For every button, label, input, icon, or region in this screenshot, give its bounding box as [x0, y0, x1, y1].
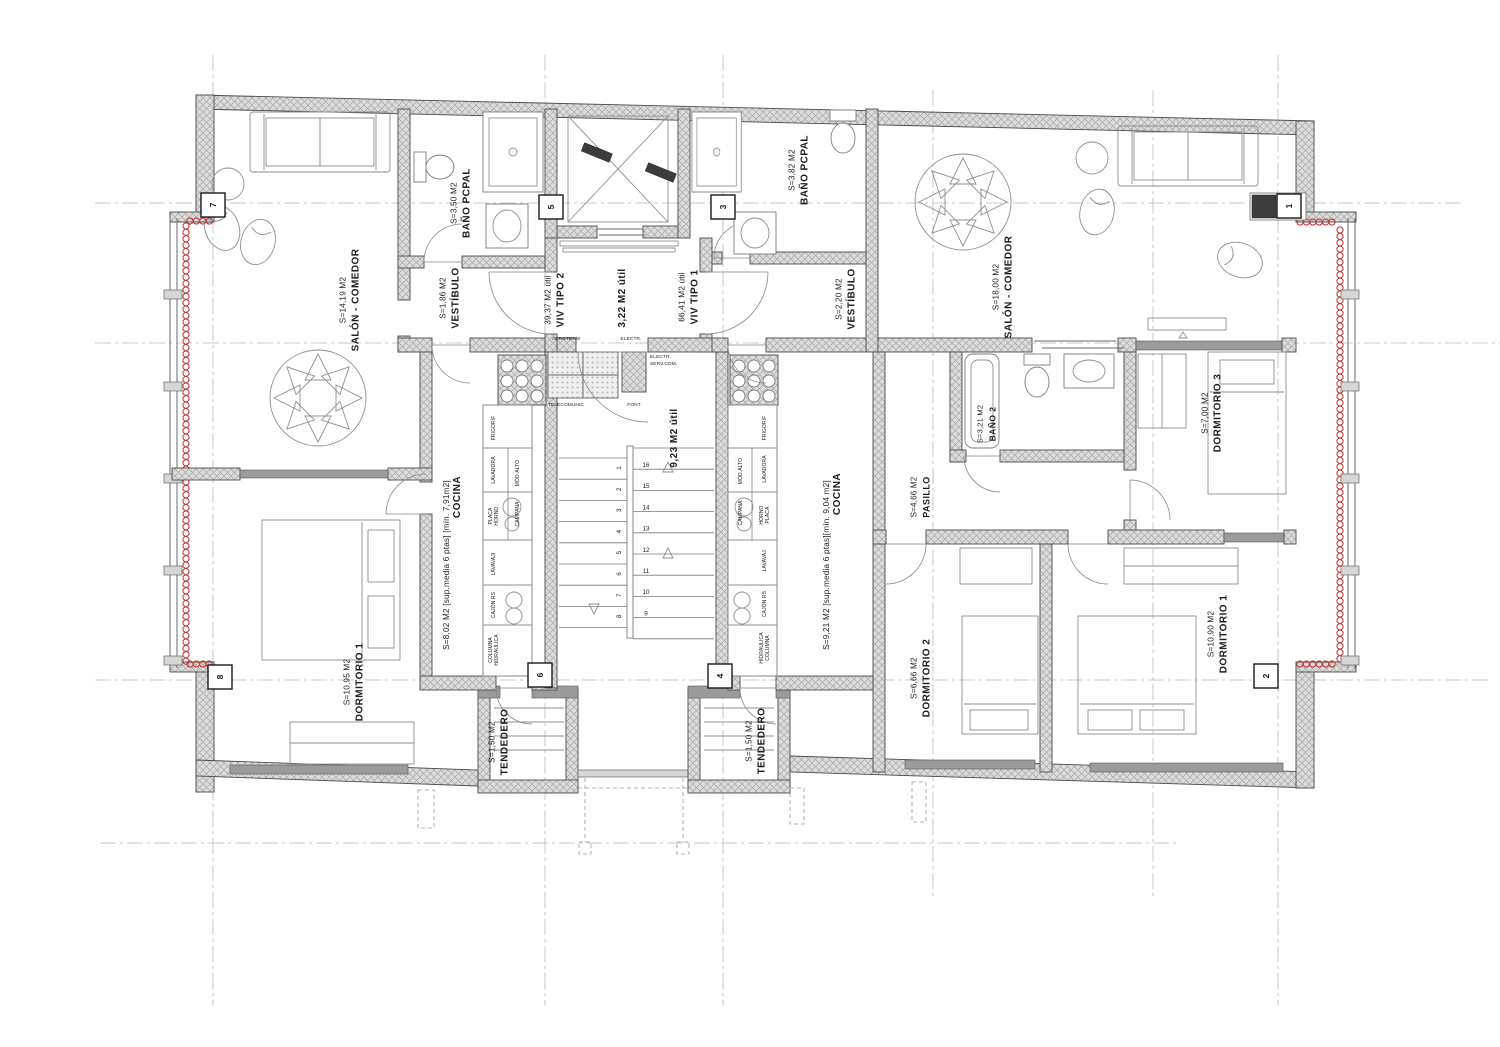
dining-set-right — [915, 154, 1011, 250]
room-label-name: 3,22 M2 útil — [617, 268, 628, 327]
room-label-name: 9,23 M2 útil — [669, 408, 680, 467]
armchair — [1076, 186, 1119, 238]
room-label-name: DORMITORIO 2 — [922, 639, 933, 718]
fixture-label: HORNO — [759, 505, 765, 524]
room-label-name: BAÑO 2 — [988, 407, 998, 442]
room-label-area: S=1,86 M2 — [439, 277, 448, 319]
closet-label: TELECOMUNIC — [548, 402, 584, 408]
room-label-name: SALÓN - COMEDOR — [1002, 235, 1015, 338]
stair-number: 2 — [616, 487, 623, 491]
fixture-label: CAMPANA — [515, 501, 521, 527]
shower — [692, 112, 741, 192]
room-label-area: S=4,66 M2 — [910, 476, 919, 517]
room-label-area: S=18,00 M2 — [992, 264, 1001, 311]
room-label-area: S=8,02 M2 [sup.media 6 ptas] [mín. 7,91m… — [442, 480, 451, 650]
shelf-dorm2 — [960, 548, 1032, 584]
axis-marker-number: 1 — [1284, 203, 1294, 208]
stair-number: 4 — [616, 529, 623, 533]
stair-number: 11 — [643, 568, 650, 575]
room-label-area: S=14,19 M2 — [339, 277, 348, 324]
kitchen-strip-left — [483, 405, 532, 676]
axis-marker-number: 4 — [715, 673, 725, 678]
fixture-label: CAJÓN RS — [490, 591, 497, 618]
fixture-label: MÓD.ALTO — [737, 458, 744, 484]
room-label-name: VIV TIPO 2 — [556, 272, 567, 327]
fixture-label: HIDRAULICA — [494, 634, 500, 666]
room-label-name: BAÑO PCPAL — [798, 135, 811, 205]
room-label-area: S=3,82 M2 — [788, 149, 797, 191]
fixture-label: LAVAVAJ. — [762, 549, 768, 572]
stair-number: 5 — [616, 551, 623, 555]
axis-marker-number: 6 — [535, 672, 545, 677]
toilet — [830, 110, 856, 153]
fixture-label: PLACA — [765, 506, 771, 523]
room-label-name: VESTÍBULO — [845, 268, 858, 329]
fixture-label: LAVADORA — [762, 455, 768, 483]
stair-number: 3 — [616, 508, 623, 512]
room-label-area: S=3,50 M2 — [450, 182, 459, 224]
axis-marker-number: 2 — [1261, 673, 1271, 678]
fixture-label: COLUMNA — [488, 637, 494, 663]
axis-marker-number: 3 — [718, 204, 728, 209]
sofa-left — [250, 112, 390, 172]
fixture-label: LAVADORA — [491, 456, 497, 484]
room-label-name: COCINA — [452, 476, 463, 518]
room-label-area: S=10,95 M2 — [343, 659, 352, 706]
fixture-label: FRIGORÍF — [490, 416, 497, 441]
bed-dorm2-right — [962, 616, 1038, 734]
room-label-name: DORMITORIO 1 — [1219, 595, 1230, 674]
room-label-area: S=9,21 M2 [sup.media 6 ptas][mín. 9,04 m… — [822, 480, 831, 650]
floor-plan-svg: SALÓN - COMEDORS=14,19 M2BAÑO PCPALS=3,5… — [0, 0, 1500, 1047]
bed-dorm1-right — [1078, 616, 1196, 734]
stair-number: 14 — [642, 504, 650, 511]
fixture-label: CAMPANA — [738, 500, 744, 526]
sofa-right — [1118, 126, 1258, 186]
room-label-area: 39,37 M2 útil — [544, 275, 553, 324]
stair-number: 7 — [616, 593, 623, 597]
room-label-name: TENDEDERO — [757, 708, 768, 775]
closet-label: AEROTERM — [552, 336, 580, 342]
stair-number: 8 — [616, 614, 623, 618]
fixture-label: COLUMNA — [765, 635, 771, 661]
closet-label: ELECTR. — [650, 354, 671, 360]
stair-number: 1 — [616, 466, 623, 470]
room-label-area: S=1,50 M2 — [745, 720, 754, 762]
room-label-area: S=10,90 M2 — [1207, 611, 1216, 658]
fixture-label: LAVAVAJI — [491, 553, 497, 576]
room-label-name: TENDEDERO — [500, 709, 511, 776]
fixture-label: CAJÓN RS — [761, 590, 768, 617]
room-label-name: PASILLO — [922, 476, 932, 517]
room-label-name: SALÓN - COMEDOR — [349, 248, 362, 351]
floor-plan: SALÓN - COMEDORS=14,19 M2BAÑO PCPALS=3,5… — [0, 0, 1500, 1047]
fixture-label: PLACA — [488, 507, 494, 524]
stairs — [559, 446, 714, 639]
shower — [483, 112, 543, 192]
room-label-area: S=3,21 M2 — [976, 405, 985, 443]
elevator — [557, 116, 678, 252]
stair-number: 12 — [642, 547, 650, 554]
sink — [486, 204, 528, 248]
fixture-label: HORNO — [494, 506, 500, 525]
stair-number: 10 — [642, 589, 650, 596]
shelf-above-dorm3 — [1148, 318, 1226, 330]
room-label-name: DORMITORIO 1 — [355, 643, 366, 722]
stair-number: 13 — [642, 526, 650, 533]
room-label-area: S=1,50 M2 — [488, 721, 497, 763]
fixture-label: MÓD.ALTO — [514, 460, 521, 486]
room-label-name: BAÑO PCPAL — [460, 168, 473, 238]
sink — [1064, 354, 1114, 388]
room-label-name: VESTÍBULO — [449, 267, 462, 328]
stair-number: 9 — [644, 610, 648, 617]
room-label-area: S=7,00 M2 — [1201, 392, 1210, 434]
fixture-label: HIDRAULICA — [759, 632, 765, 664]
armchair — [236, 215, 281, 268]
closet-label: SERV.COM. — [650, 361, 677, 367]
axis-marker-number: 5 — [546, 204, 556, 209]
dining-set-left — [270, 350, 366, 446]
stair-number: 15 — [642, 483, 650, 490]
stair-number: 6 — [616, 572, 623, 576]
axis-marker-number: 7 — [208, 202, 218, 207]
toilet — [414, 152, 454, 182]
toilet — [1024, 354, 1050, 397]
bed-dorm1-left — [262, 520, 400, 660]
room-label-name: COCINA — [832, 473, 843, 515]
fixture-label: FRIGORÍF — [761, 416, 768, 441]
closet-label: FONT — [627, 402, 640, 408]
side-table-right — [1076, 142, 1108, 174]
room-label-area: 66,41 M2 útil — [678, 272, 687, 321]
room-label-area: S=2,20 M2 — [835, 278, 844, 320]
room-label-name: VIV TIPO 1 — [690, 269, 701, 324]
room-label-area: S=6,66 M2 — [910, 657, 919, 699]
facade-right — [1348, 218, 1355, 668]
tendedero-lines — [494, 708, 774, 750]
facade-left — [170, 218, 177, 668]
stair-number: 16 — [642, 462, 650, 469]
axis-marker-number: 8 — [215, 674, 225, 679]
room-label-name: DORMITORIO 3 — [1213, 374, 1224, 453]
armchair — [1213, 236, 1268, 284]
closet-label: ELECTR. — [621, 336, 642, 342]
